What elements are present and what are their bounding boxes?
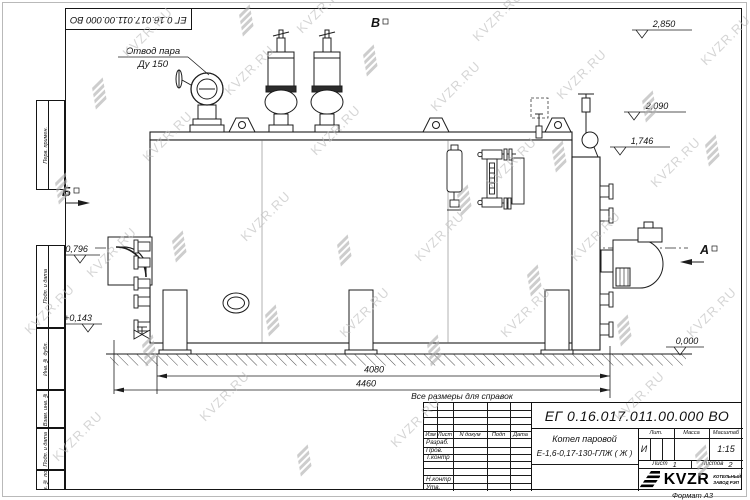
sheet-cell: Лист 1 bbox=[638, 460, 691, 468]
margin-label: Перв. примен. bbox=[43, 127, 49, 164]
margin-box-perv-primen: Перв. примен. bbox=[36, 100, 65, 190]
sheet-label: Лист bbox=[652, 461, 667, 467]
product-name-line1: Котел паровой bbox=[552, 433, 617, 447]
row-tkontr: Т.контр bbox=[424, 454, 455, 461]
logo-caption-line2: ЗАВОД РЭП bbox=[713, 480, 741, 486]
margin-label: Инв. № дубл. bbox=[43, 342, 49, 376]
company-logo-cell: KVZR КОТЕЛЬНЫЙ ЗАВОД РЭП bbox=[638, 468, 743, 491]
top-document-stamp: ЕГ 0.16.017.011.00.000 ВО bbox=[65, 8, 192, 30]
product-name-line2: Е-1,6-0,17-130-ГЛЖ ( Ж ) bbox=[537, 447, 633, 459]
header-podp: Подп bbox=[487, 431, 510, 438]
top-stamp-number: ЕГ 0.16.017.011.00.000 ВО bbox=[70, 14, 187, 25]
margin-box-podp-data-1: Подп. и дата bbox=[36, 245, 65, 328]
title-block-doc-number: ЕГ 0.16.017.011.00.000 ВО bbox=[531, 403, 743, 428]
margin-box-inv-dubl: Инв. № дубл. bbox=[36, 328, 65, 390]
header-izm: Изм bbox=[424, 431, 437, 438]
row-nkontr: Н.контр bbox=[424, 475, 455, 483]
margin-label: Инв. № подл. bbox=[43, 470, 49, 490]
kvzr-logo-icon bbox=[640, 471, 660, 488]
row-razrab: Разраб. bbox=[424, 438, 455, 447]
row-prov: Пров. bbox=[424, 447, 455, 454]
margin-box-vzam-inv: Взам. инв. № bbox=[36, 390, 65, 428]
header-masshtab: Масштаб bbox=[709, 428, 743, 438]
drawing-sheet: Отвод пара Ду 150 4080 4460 Все размеры … bbox=[0, 0, 750, 500]
row-utv: Утв. bbox=[424, 483, 455, 491]
margin-box-inv-podl: Инв. № подл. bbox=[36, 470, 65, 490]
header-data: Дата bbox=[510, 431, 531, 438]
margin-label: Подп. и дата bbox=[43, 269, 49, 303]
lit-value: И bbox=[638, 438, 650, 460]
margin-label: Подп. и дата bbox=[43, 432, 49, 466]
margin-box-podp-data-2: Подп. и дата bbox=[36, 428, 65, 470]
product-name: Котел паровой Е-1,6-0,17-130-ГЛЖ ( Ж ) bbox=[531, 428, 638, 464]
header-ndokum: N докум bbox=[453, 431, 487, 438]
title-block: Изм Лист N докум Подп Дата Разраб. Пров.… bbox=[423, 402, 742, 490]
kvzr-logo-text: KVZR bbox=[664, 471, 710, 489]
scale-value: 1:15 bbox=[709, 438, 743, 460]
format-label: Формат А3 bbox=[645, 490, 740, 500]
margin-label: Взам. инв. № bbox=[43, 392, 49, 426]
header-massa: Масса bbox=[674, 428, 709, 438]
header-list: Лист bbox=[437, 431, 453, 438]
header-lit: Лит. bbox=[638, 428, 674, 438]
kvzr-logo-caption: КОТЕЛЬНЫЙ ЗАВОД РЭП bbox=[713, 474, 741, 485]
sheets-cell: Листов 2 bbox=[691, 460, 743, 468]
sheets-label: Листов bbox=[701, 461, 723, 467]
